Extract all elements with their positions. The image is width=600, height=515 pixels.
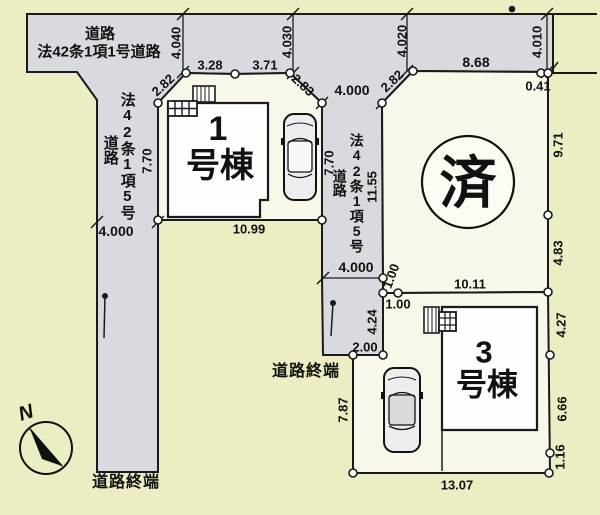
dim-lot2-top-right: 0.41 <box>525 80 550 93</box>
road-end-label-center: 道路終端 <box>272 364 340 380</box>
dim-lot3-right-upper: 4.27 <box>555 312 568 337</box>
center-road-name: 法42条1項5号 <box>349 133 364 253</box>
dim-center-road-left: 7.70 <box>323 150 336 175</box>
porch-icon-lot3 <box>439 312 456 331</box>
dim-lot1-top-seg1: 3.28 <box>197 59 222 72</box>
dim-lot1-bottom: 10.99 <box>233 223 266 236</box>
dim-center-road-top-width: 4.000 <box>334 83 369 97</box>
dim-top-road-width-2: 4.030 <box>281 26 294 59</box>
car-icon-lot1 <box>281 114 319 200</box>
sold-stamp-text: 済 <box>440 156 497 213</box>
dim-center-road-bottom-width: 4.000 <box>338 260 373 274</box>
dim-top-road-width-3: 4.020 <box>396 25 409 58</box>
dim-lot3-left: 7.87 <box>337 397 350 422</box>
dim-top-road-width-4: 4.010 <box>531 26 544 59</box>
stairs-icon-lot1 <box>193 86 215 102</box>
dim-lot3-right-lower: 1.16 <box>554 444 567 469</box>
dim-lot2-right-lower: 4.83 <box>552 240 565 265</box>
dim-lot3-right-mid: 6.66 <box>556 396 569 421</box>
dim-lot1-left: 7.70 <box>141 148 154 173</box>
main-road-label-line1: 道路 <box>85 27 115 42</box>
building1-number: 1 <box>209 112 228 146</box>
left-road-name: 法42条1項5号 <box>119 92 135 220</box>
building3-suffix: 号棟 <box>456 370 518 401</box>
dim-lot3-top: 10.11 <box>454 278 486 291</box>
stairs-icon-lot3 <box>424 307 439 333</box>
building3-number: 3 <box>475 337 492 368</box>
building1-suffix: 号棟 <box>186 149 254 183</box>
dim-lot1-top-seg2: 3.71 <box>252 59 277 72</box>
dim-center-road-right: 11.55 <box>366 171 379 203</box>
left-road-suffix: 道路 <box>102 135 118 165</box>
dim-lot2-top: 8.68 <box>462 55 489 69</box>
road-end-label-left: 道路終端 <box>92 475 160 491</box>
dim-lot3-north-step: 2.00 <box>352 341 377 354</box>
dim-lot3-jog: 1.00 <box>385 298 410 311</box>
dim-lot2-right-upper: 9.71 <box>552 132 565 157</box>
main-road-label-line2: 法42条1項1号道路 <box>37 45 160 60</box>
dim-left-road-width: 4.000 <box>98 224 133 238</box>
car-icon-lot3 <box>381 368 423 452</box>
dim-top-road-width-1: 4.040 <box>170 27 183 60</box>
porch-icon-lot1 <box>168 101 197 116</box>
dim-lot3-west-upper: 4.24 <box>366 309 379 334</box>
site-plan: 道路 法42条1項1号道路 法42条1項5号 道路 法42条1項5号 道路 道路… <box>0 0 600 515</box>
dim-lot3-bottom: 13.07 <box>441 479 474 492</box>
